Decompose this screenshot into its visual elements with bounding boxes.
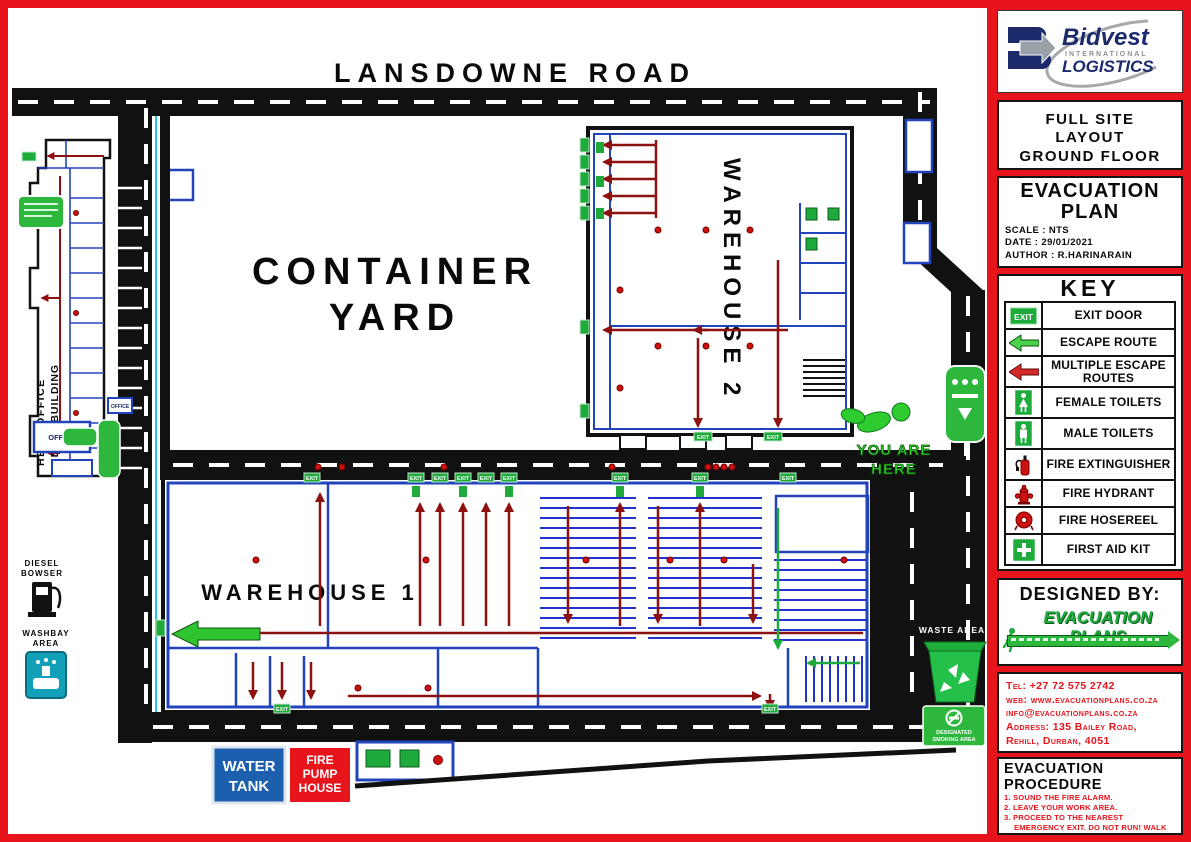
svg-text:EXIT: EXIT [614, 476, 627, 482]
svg-text:WATER: WATER [222, 758, 275, 775]
svg-text:PUMP: PUMP [303, 767, 338, 781]
svg-text:HERE: HERE [871, 461, 917, 478]
escape-route-arrow-icon [1009, 334, 1039, 352]
multiple-escape-routes-arrow-icon [1009, 363, 1039, 381]
evacuation-plan-panel: EVACUATION PLAN SCALE : NTS DATE : 29/01… [997, 176, 1183, 268]
contact-email: info@evacuationplans.co.za [1006, 707, 1174, 721]
contact-address-1: Address: 135 Bailey Road, [1006, 721, 1174, 735]
exit-door-marker [22, 152, 36, 161]
key-title: KEY [999, 276, 1181, 301]
smoking-area-sign: DESIGNATED SMOKING AREA [923, 706, 985, 746]
fire-hosereel-icon [1012, 510, 1036, 532]
male-toilets-icon [1015, 421, 1032, 446]
svg-text:DIESEL: DIESEL [25, 559, 60, 568]
assembly-point-sign [63, 428, 97, 446]
plan-date: DATE : 29/01/2021 [1005, 237, 1175, 248]
loading-docks [620, 435, 752, 449]
exit-door-icon: EXIT [1010, 307, 1037, 325]
svg-text:WASTE AREA: WASTE AREA [919, 625, 985, 635]
svg-text:EXIT: EXIT [694, 476, 707, 482]
key-row-male-toilets: MALE TOILETS [1006, 419, 1174, 450]
plan-author: AUTHOR : R.HARINARAIN [1005, 250, 1175, 261]
svg-text:HOUSE: HOUSE [299, 781, 342, 795]
key-row-fire-hosereel: FIRE HOSEREEL [1006, 508, 1174, 535]
container-yard-label-2: YARD [329, 297, 461, 339]
key-row-fire-extinguisher: FIRE EXTINGUISHER [1006, 450, 1174, 481]
key-row-exit-door: EXIT EXIT DOOR [1006, 303, 1174, 330]
svg-text:YOU ARE: YOU ARE [857, 442, 932, 459]
fire-hydrant-marker [434, 756, 443, 765]
logo-tagline [1011, 638, 1159, 641]
assembly-point-sign [18, 196, 64, 228]
layout-title-line: LAYOUT [999, 129, 1181, 147]
bidvest-logo-panel: Bidvest INTERNATIONAL LOGISTICS [997, 10, 1183, 93]
svg-text:EXIT: EXIT [276, 707, 289, 713]
pump-unit-icon [400, 750, 419, 767]
fire-pump-house-building [357, 742, 453, 780]
designed-by-title: DESIGNED BY: [999, 584, 1181, 605]
key-row-escape-route: ESCAPE ROUTE [1006, 330, 1174, 357]
plan-title-1: EVACUATION [1005, 181, 1175, 202]
key-row-fire-hydrant: FIRE HYDRANT [1006, 481, 1174, 508]
container-yard-label-1: CONTAINER [252, 251, 538, 293]
plan-title-2: PLAN [1005, 202, 1175, 223]
svg-text:EXIT: EXIT [503, 476, 516, 482]
svg-text:EXIT: EXIT [457, 476, 470, 482]
brand-name: Bidvest [1062, 24, 1150, 51]
fire-pump-house-sign: FIRE PUMP HOUSE [289, 747, 351, 803]
brand-line2: LOGISTICS [1062, 57, 1154, 76]
bidvest-logo: Bidvest INTERNATIONAL LOGISTICS [998, 11, 1180, 90]
key-table: EXIT EXIT DOOR ESCAPE ROUTE MULTIPLE ESC… [1004, 301, 1176, 566]
procedure-title: EVACUATION PROCEDURE [1004, 761, 1176, 793]
svg-text:FIRE: FIRE [306, 753, 333, 767]
contact-address-2: Rehill, Durban, 4051 [1006, 735, 1174, 749]
road-label: LANSDOWNE ROAD [334, 58, 696, 88]
fire-extinguisher-icon [1012, 452, 1036, 478]
evacuation-procedure-panel: EVACUATION PROCEDURE 1. SOUND THE FIRE A… [997, 757, 1183, 835]
svg-text:TANK: TANK [229, 778, 270, 795]
svg-text:AREA: AREA [33, 639, 60, 648]
stairs [803, 360, 845, 396]
svg-text:EXIT: EXIT [697, 435, 710, 441]
svg-text:EXIT: EXIT [434, 476, 447, 482]
procedure-step: 1. SOUND THE FIRE ALARM. [1004, 793, 1176, 803]
svg-text:EXIT: EXIT [767, 435, 780, 441]
procedure-step: 2. LEAVE YOUR WORK AREA. [1004, 803, 1176, 813]
key-row-first-aid-kit: FIRST AID KIT [1006, 535, 1174, 564]
warehouse-2: WAREHOUSE 2 [580, 128, 852, 449]
water-tank-sign: WATER TANK [213, 747, 285, 803]
female-toilets-icon [1015, 390, 1032, 415]
svg-text:DESIGNATED: DESIGNATED [936, 730, 972, 736]
assembly-point-sign [98, 420, 120, 478]
contact-tel: Tel: +27 72 575 2742 [1006, 680, 1174, 694]
layout-title-line: GROUND FLOOR [999, 148, 1181, 166]
warehouse-2-label: WAREHOUSE 2 [718, 158, 745, 401]
site-map: LANSDOWNE ROAD [8, 8, 987, 834]
svg-text:SMOKING AREA: SMOKING AREA [932, 737, 975, 743]
key-panel: KEY EXIT EXIT DOOR ESCAPE ROUTE MULTIPLE… [997, 274, 1183, 571]
layout-title-line: FULL SITE [999, 111, 1181, 129]
svg-text:WASHBAY: WASHBAY [22, 629, 69, 638]
svg-text:EXIT: EXIT [306, 476, 319, 482]
designed-by-panel: DESIGNED BY: EVACUATION PLANS [997, 578, 1183, 666]
svg-text:EXIT: EXIT [1014, 312, 1034, 322]
evacuation-plans-logo: EVACUATION PLANS [1005, 609, 1175, 661]
first-aid-kit-icon [1013, 539, 1035, 561]
procedure-step: 3. PROCEED TO THE NEAREST EMERGENCY EXIT… [1004, 813, 1176, 835]
logo-arrow [1007, 635, 1169, 647]
washbay-icon [26, 652, 66, 698]
layout-title-panel: FULL SITE LAYOUT GROUND FLOOR [997, 100, 1183, 170]
svg-text:EXIT: EXIT [782, 476, 795, 482]
warehouse-1: WAREHOUSE 1 [156, 464, 872, 713]
svg-text:EXIT: EXIT [764, 707, 777, 713]
contact-web: web: www.evacuationplans.co.za [1006, 694, 1174, 708]
svg-text:BOWSER: BOWSER [21, 569, 63, 578]
plan-scale: SCALE : NTS [1005, 225, 1175, 236]
svg-text:EXIT: EXIT [410, 476, 423, 482]
svg-text:EXIT: EXIT [480, 476, 493, 482]
key-row-female-toilets: FEMALE TOILETS [1006, 388, 1174, 419]
contact-panel: Tel: +27 72 575 2742 web: www.evacuation… [997, 672, 1183, 753]
office-label-small: OFFICE [111, 404, 130, 410]
fire-hydrant-icon [1012, 483, 1036, 505]
warehouse-1-label: WAREHOUSE 1 [201, 580, 419, 605]
key-row-multiple-escape-routes: MULTIPLE ESCAPE ROUTES [1006, 357, 1174, 388]
pump-unit-icon [366, 750, 390, 767]
